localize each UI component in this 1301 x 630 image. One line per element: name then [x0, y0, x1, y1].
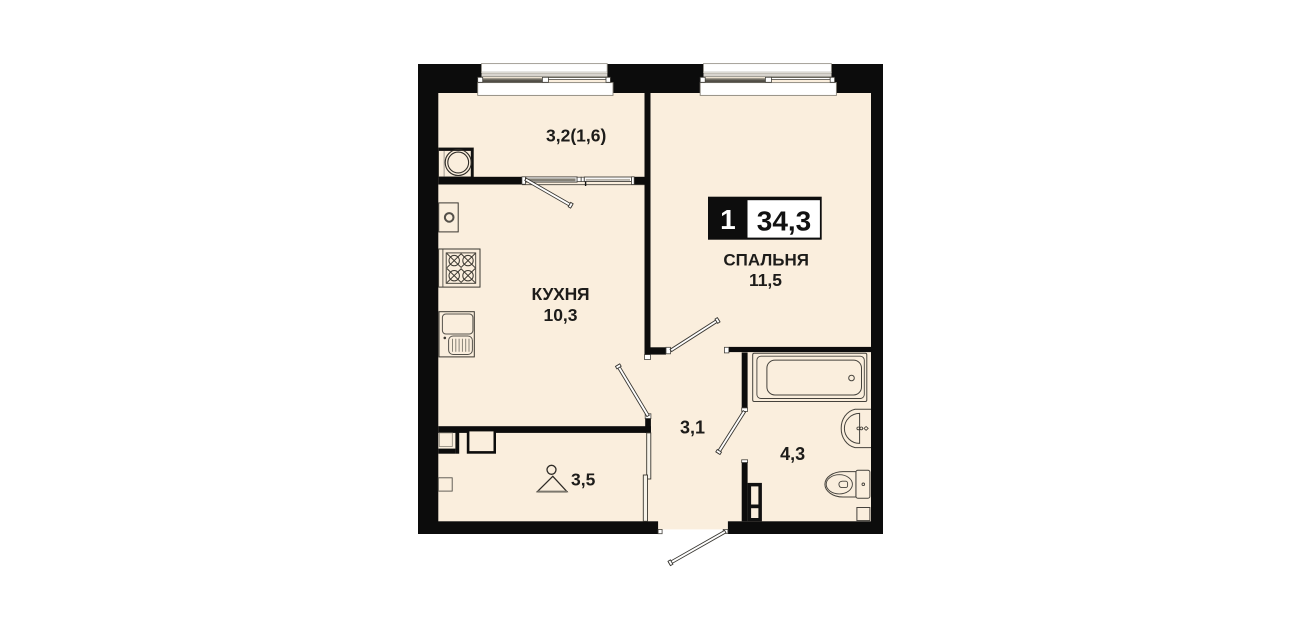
svg-text:11,5: 11,5 [749, 270, 782, 290]
svg-text:3,2(1,6): 3,2(1,6) [546, 126, 606, 146]
svg-text:1: 1 [720, 204, 736, 235]
svg-text:34,3: 34,3 [757, 205, 812, 236]
svg-text:4,3: 4,3 [780, 444, 805, 464]
svg-text:3,1: 3,1 [680, 418, 705, 438]
svg-text:СПАЛЬНЯ: СПАЛЬНЯ [723, 250, 809, 269]
svg-text:10,3: 10,3 [543, 305, 577, 325]
svg-text:3,5: 3,5 [571, 470, 596, 490]
svg-text:КУХНЯ: КУХНЯ [532, 284, 590, 304]
